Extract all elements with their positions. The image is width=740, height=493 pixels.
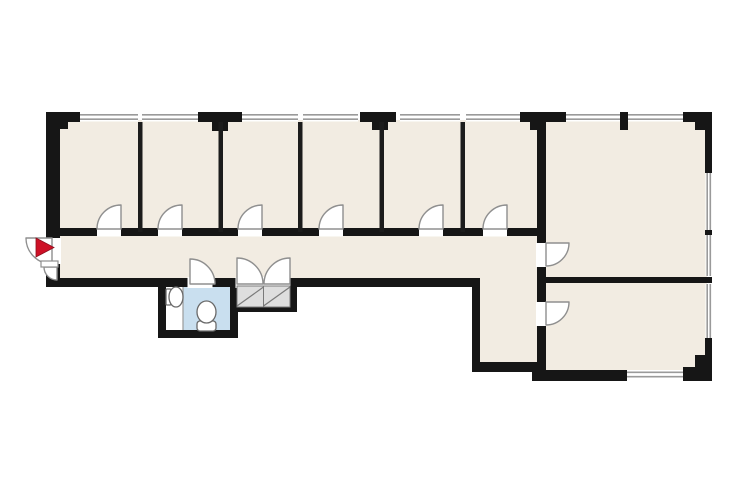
office-divider-3 [298, 122, 303, 232]
lower-right-room-floor [544, 280, 707, 372]
office-divider-1 [138, 122, 143, 232]
closet-right-wall [290, 287, 297, 312]
window-top-7 [566, 113, 620, 122]
top-pillar-1 [198, 112, 242, 122]
entrance-door-small [44, 267, 57, 280]
window-top-6 [466, 113, 520, 122]
bathroom-left-wall [158, 278, 166, 338]
step-down-wall [472, 278, 480, 372]
window-top-1 [80, 113, 138, 122]
floor-plan-svg [0, 0, 740, 493]
right-wall-tick [705, 230, 712, 235]
office-divider-4 [380, 122, 385, 232]
window-top-8 [628, 113, 683, 122]
top-left-corner-b [46, 122, 68, 129]
offices-bottom-wall [60, 228, 546, 236]
top-pillar-2 [360, 112, 396, 122]
office-divider-5 [461, 122, 466, 232]
sink-bowl [169, 287, 183, 307]
window-top-5 [400, 113, 460, 122]
large-room-floor [544, 120, 707, 280]
floor-plan [0, 0, 740, 493]
window-top-3 [242, 113, 298, 122]
right-rooms-divider-wall [546, 277, 712, 283]
office-divider-2 [219, 122, 224, 232]
entrance-leaf [41, 261, 58, 267]
lobby-floor [478, 278, 539, 364]
bottom-wall-left-of-window [532, 370, 627, 381]
large-room-top-stub [620, 112, 628, 130]
bottom-wall-right-of-window [687, 370, 712, 381]
window-bottom-1 [627, 370, 687, 379]
top-left-corner-a [46, 112, 80, 122]
toilet-bowl [197, 301, 216, 323]
right-wall-upper [705, 112, 712, 173]
window-top-4 [303, 113, 358, 122]
window-top-2 [142, 113, 198, 122]
